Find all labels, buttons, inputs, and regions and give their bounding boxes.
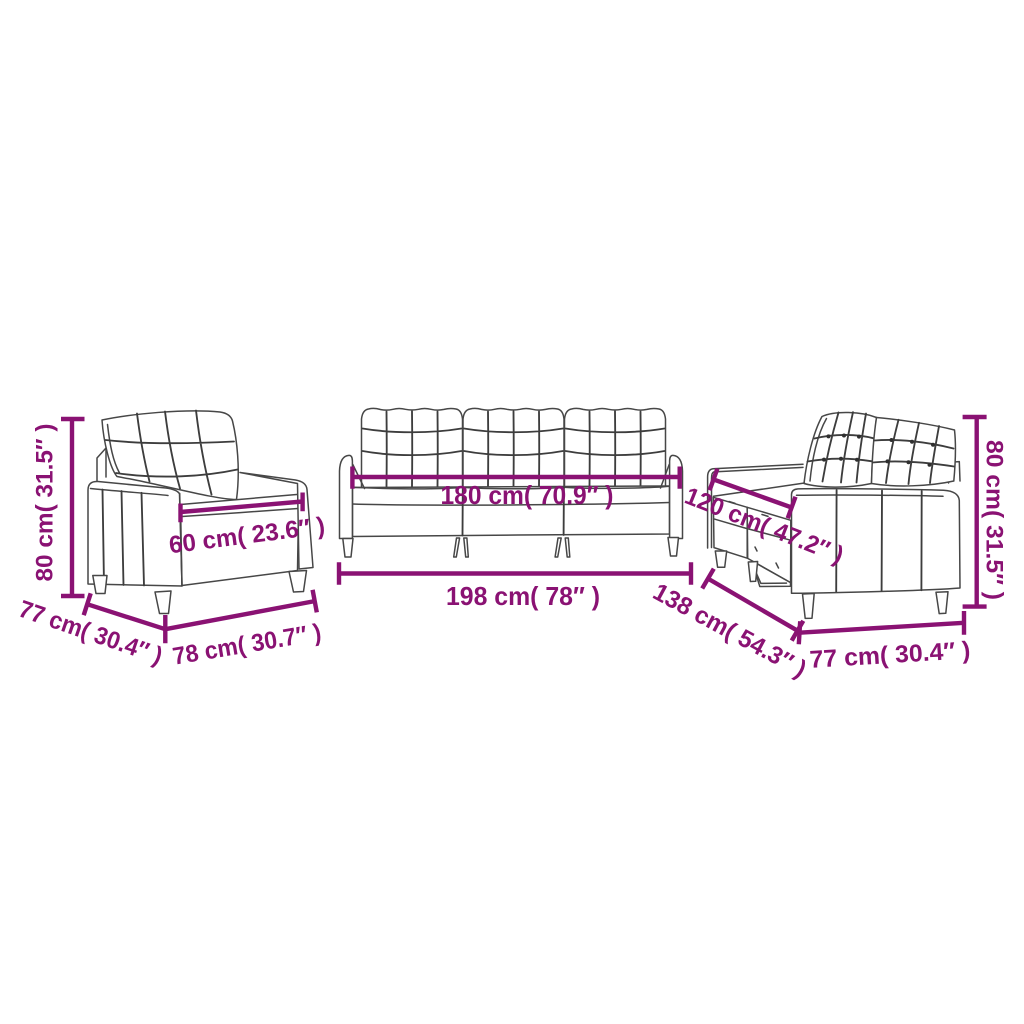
svg-text:198 cm( 78″ ): 198 cm( 78″ ) <box>446 581 600 611</box>
svg-text:180 cm( 70.9″ ): 180 cm( 70.9″ ) <box>441 480 614 510</box>
svg-text:80 cm( 31.5″ ): 80 cm( 31.5″ ) <box>981 440 1008 600</box>
svg-text:80 cm( 31.5″ ): 80 cm( 31.5″ ) <box>32 424 59 582</box>
